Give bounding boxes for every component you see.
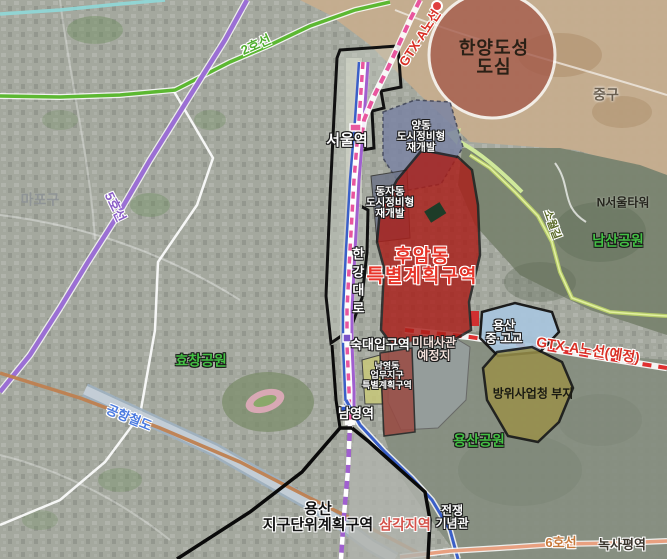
city-park-patch: [98, 468, 142, 492]
war-memorial-line2: 기념관: [435, 517, 468, 530]
us-embassy-line1: 미대사관: [412, 336, 456, 349]
yongsan-district-label: 용산 지구단위계획구역: [263, 501, 373, 533]
seoul-station-marker: [350, 124, 361, 131]
huam-special-label: 후암동 특별계획구역: [367, 247, 478, 287]
yongsan-district-line2: 지구단위계획구역: [263, 517, 373, 533]
hyochang-park-label: 효창공원: [175, 354, 227, 369]
yangdong-line3: 재개발: [397, 143, 445, 154]
terrain-blob: [558, 394, 642, 446]
war-memorial-line1: 전쟁: [435, 504, 468, 517]
yongsan-school-line1: 용산: [485, 319, 522, 332]
sukdae-station-label: 숙대입구역: [350, 338, 410, 352]
us-embassy-label: 미대사관 예정지: [412, 336, 456, 361]
city-park-patch: [42, 110, 78, 130]
yongsan-school-label: 용산 중·고교: [485, 319, 522, 344]
hanyang-core-label: 한양도성 도심: [459, 39, 529, 77]
namyeong-biz-label: 남영동 업무지구 특별계획구역: [362, 362, 412, 390]
yongsan-park-label: 용산공원: [453, 434, 505, 449]
map-layers: [0, 0, 667, 559]
war-memorial-label: 전쟁 기념관: [435, 504, 468, 529]
seoul-station-label: 서울역: [326, 133, 367, 149]
city-park-patch: [130, 193, 170, 217]
hanyang-core-line2: 도심: [459, 58, 529, 77]
namyeong-station-label: 남영역: [338, 407, 374, 421]
city-park-patch: [67, 16, 123, 44]
n-seoul-tower-label: N서울타워: [597, 197, 650, 210]
mapo-gu-label: 마포구: [21, 193, 60, 208]
yongsan-district-line1: 용산: [263, 501, 373, 517]
namsan-park-label: 남산공원: [592, 234, 644, 249]
yongsan-school-line2: 중·고교: [485, 332, 522, 345]
noksapyeong-station-label: 녹사평역: [598, 538, 646, 552]
city-park-patch: [194, 110, 226, 130]
jung-gu-label: 중구: [593, 88, 619, 103]
satellite-planning-map: 2호선 5호선 GTX-A노선 한양도성 도심 중구 마포구 서울역 양동 도시…: [0, 0, 667, 559]
yangdong-label: 양동 도시정비형 재개발: [397, 120, 445, 153]
hanyang-core-line1: 한양도성: [459, 39, 529, 58]
us-embassy-line2: 예정지: [412, 349, 456, 362]
defense-agency-label: 방위사업청 부지: [493, 388, 574, 401]
huam-line2: 특별계획구역: [367, 267, 478, 287]
dongja-label: 동자동 도시정비형 재개발: [366, 186, 414, 219]
line-6-label: 6호선: [545, 536, 576, 550]
dongja-line3: 재개발: [366, 209, 414, 220]
hangang-daero-label: 한강대로: [350, 247, 364, 319]
samgakji-station-label: 삼각지역: [379, 518, 431, 533]
huam-line1: 후암동: [367, 247, 478, 267]
namyeong-biz-line3: 특별계획구역: [362, 381, 412, 390]
